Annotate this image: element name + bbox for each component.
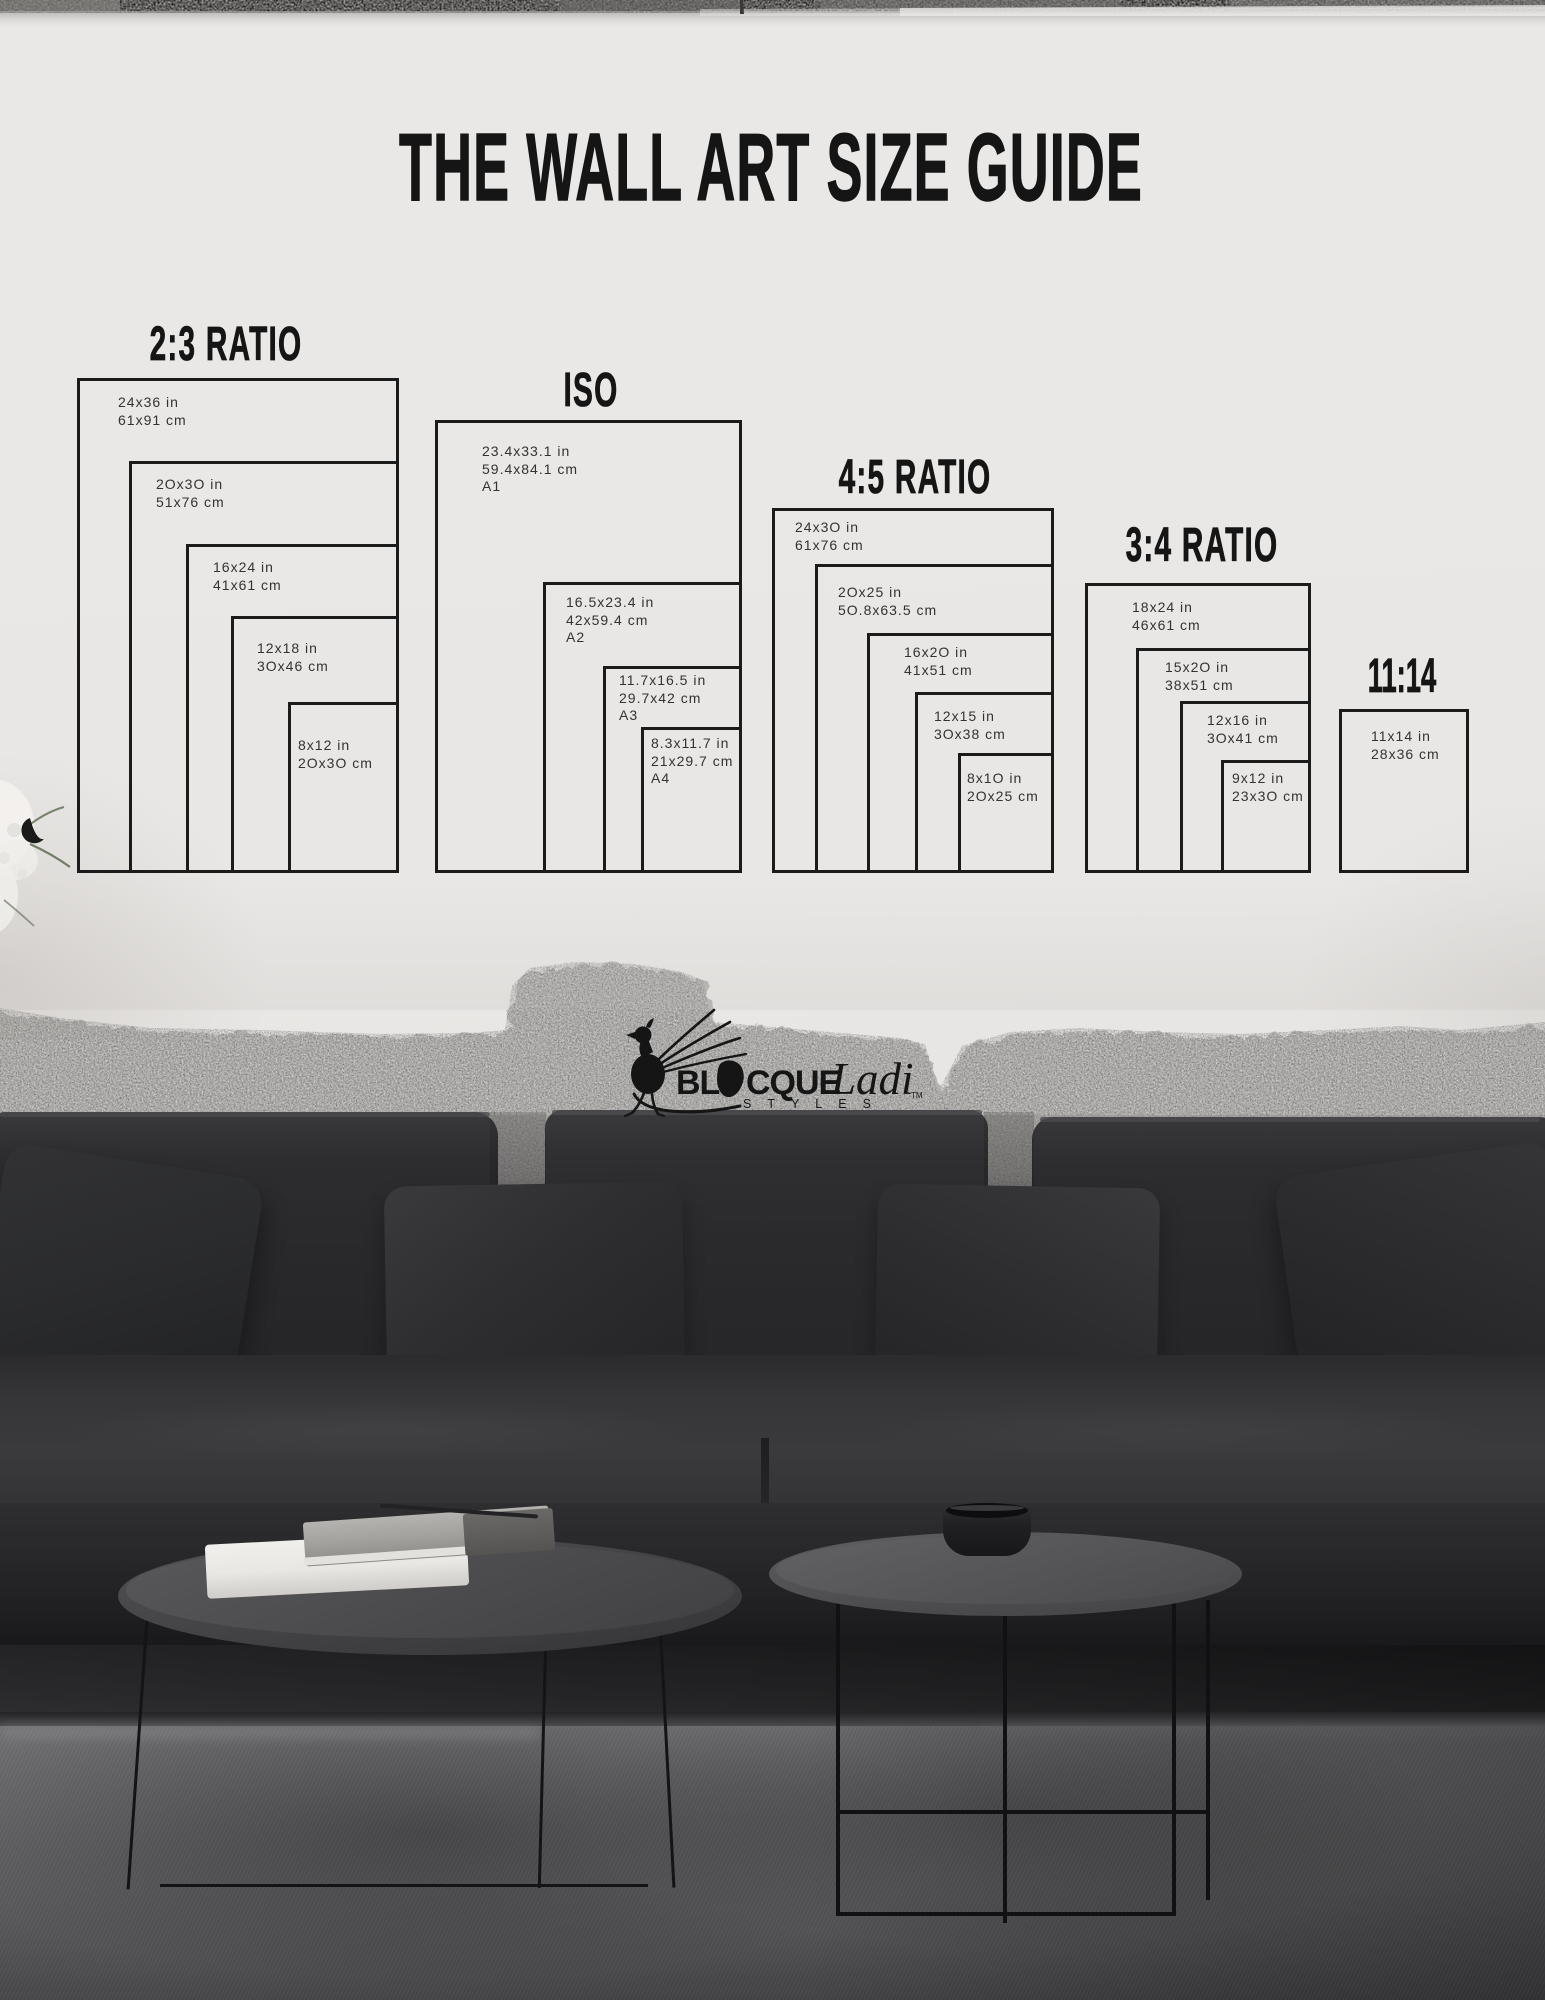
- svg-text:STYLES: STYLES: [743, 1097, 887, 1111]
- svg-text:BL: BL: [676, 1064, 720, 1102]
- svg-text:TM: TM: [911, 1091, 923, 1100]
